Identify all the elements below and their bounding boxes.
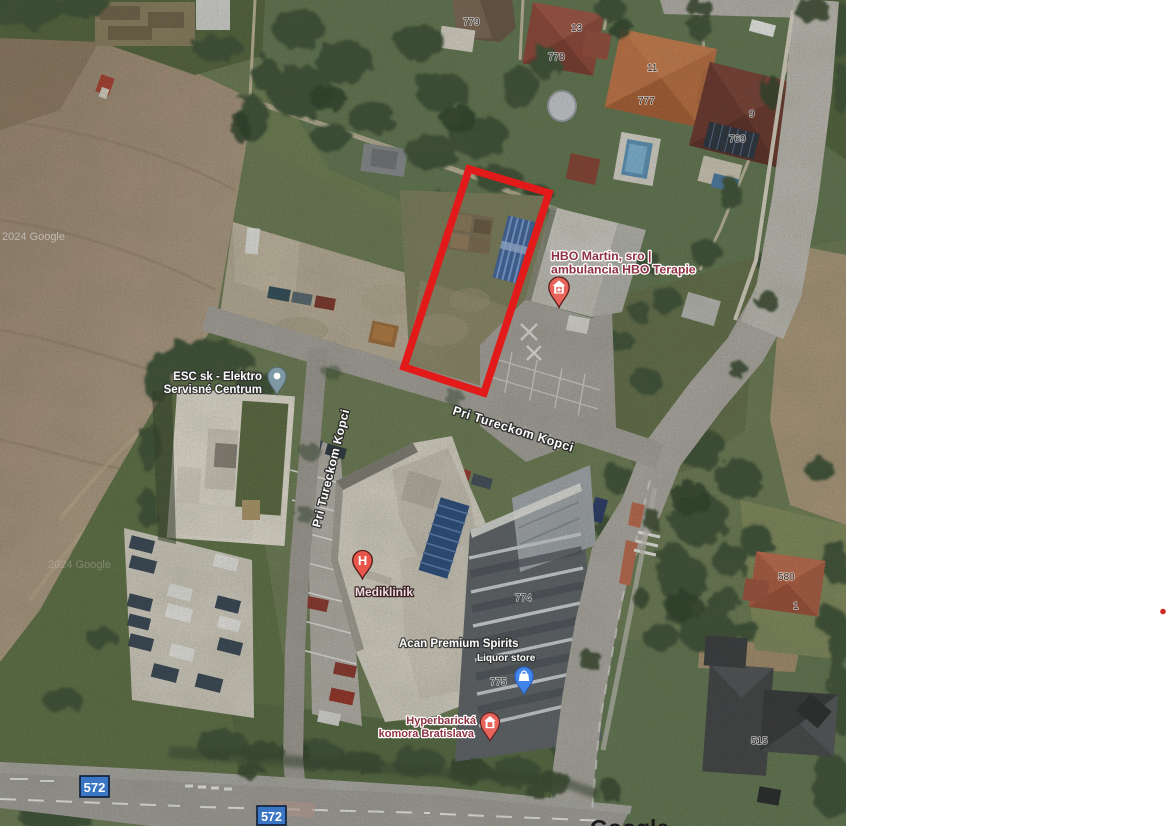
svg-text:769: 769	[729, 134, 746, 145]
svg-text:774: 774	[515, 593, 532, 604]
svg-text:Mediklinik: Mediklinik	[355, 585, 413, 599]
svg-text:572: 572	[84, 780, 106, 795]
svg-text:778: 778	[548, 52, 565, 63]
svg-text:H: H	[358, 553, 367, 568]
svg-text:572: 572	[261, 810, 282, 824]
svg-text:ESC sk - Elektro: ESC sk - Elektro	[173, 371, 262, 383]
svg-text:580: 580	[778, 572, 795, 583]
svg-text:779: 779	[463, 17, 480, 28]
svg-text:Liquor store: Liquor store	[477, 653, 536, 664]
svg-text:Acan Premium Spirits: Acan Premium Spirits	[399, 638, 519, 650]
svg-text:777: 777	[638, 96, 655, 107]
svg-text:2024 Google: 2024 Google	[48, 559, 111, 571]
svg-text:9: 9	[749, 109, 755, 120]
svg-text:1: 1	[793, 601, 799, 612]
svg-text:komora Bratislava: komora Bratislava	[379, 728, 475, 740]
svg-text:515: 515	[751, 736, 768, 747]
svg-text:2024 Google: 2024 Google	[2, 231, 65, 243]
svg-text:Google: Google	[590, 815, 669, 826]
svg-text:13: 13	[571, 23, 583, 34]
svg-text:ambulancia HBO Terapie: ambulancia HBO Terapie	[551, 263, 696, 277]
svg-text:HBO Martin, sro |: HBO Martin, sro |	[551, 249, 651, 263]
svg-text:11: 11	[647, 63, 658, 74]
svg-text:Hyperbarická: Hyperbarická	[406, 715, 477, 727]
svg-text:775: 775	[490, 677, 507, 688]
svg-text:Servisné Centrum: Servisné Centrum	[164, 384, 262, 396]
